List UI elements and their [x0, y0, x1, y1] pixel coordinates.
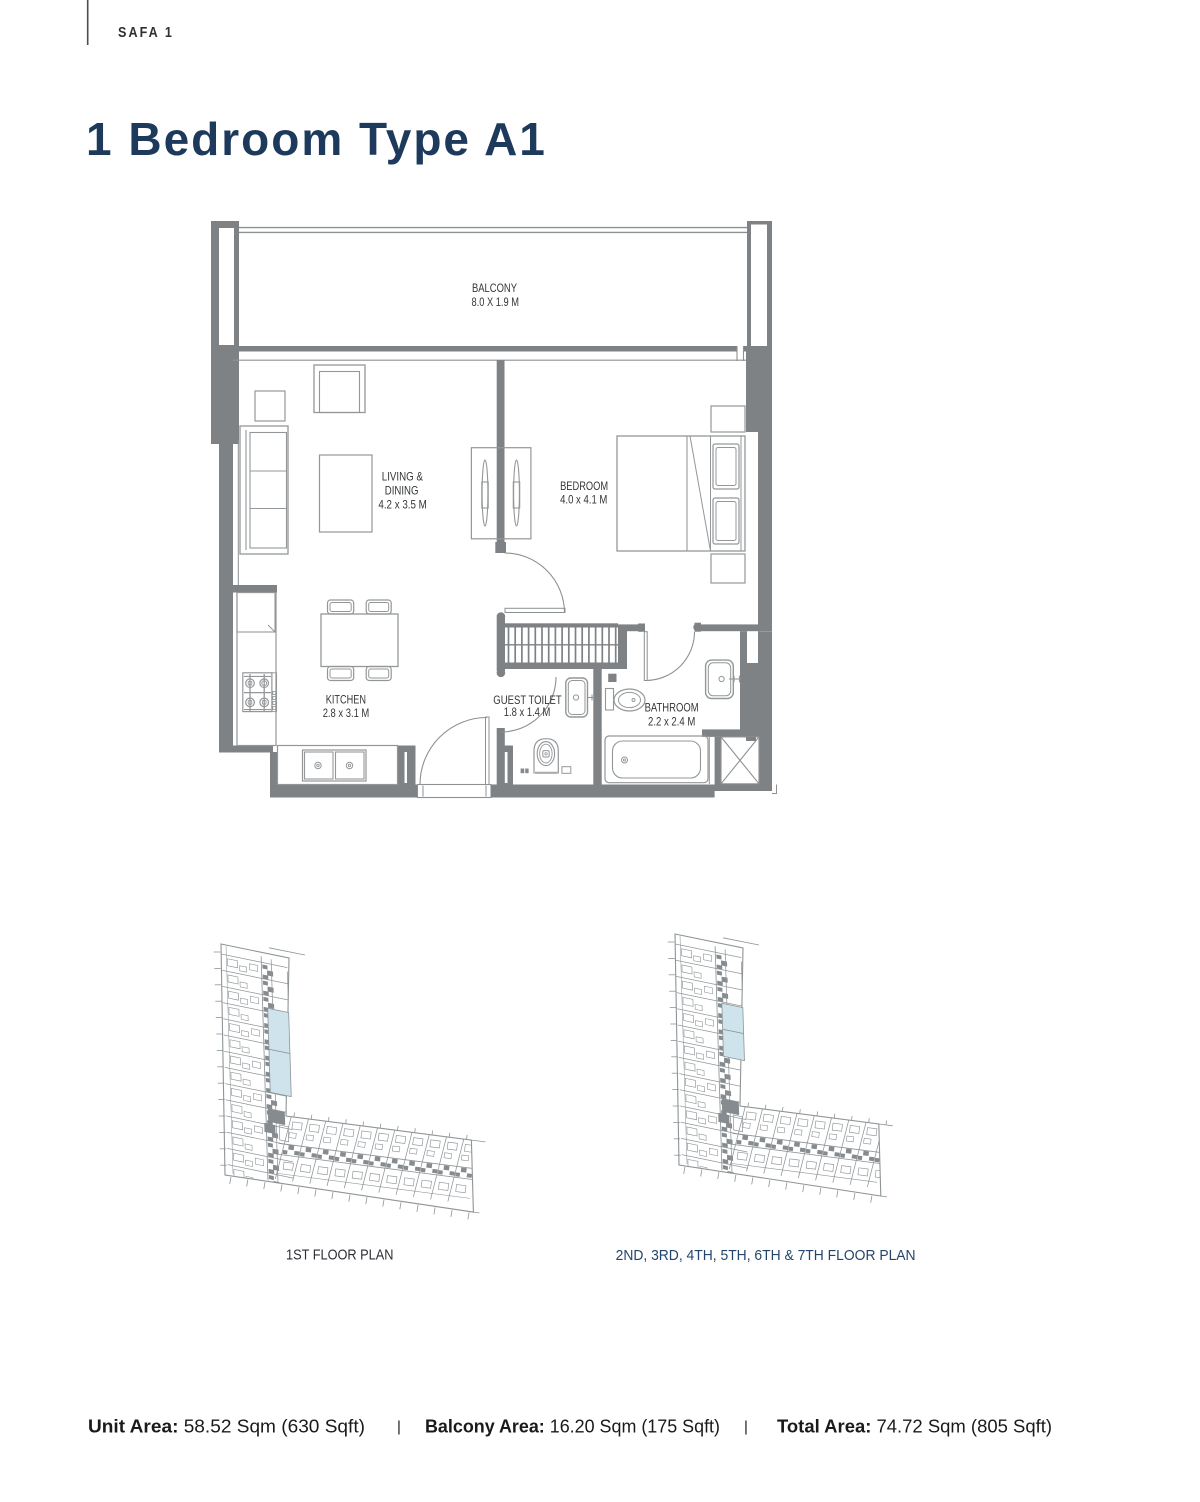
svg-text:|: |: [397, 1419, 401, 1436]
svg-text:1ST FLOOR PLAN: 1ST FLOOR PLAN: [286, 1247, 394, 1264]
svg-text:Unit Area: 58.52 Sqm (630 Sqf: Unit Area: 58.52 Sqm (630 Sqft): [88, 1417, 365, 1437]
svg-text:Balcony Area: 16.20 Sqm (175 S: Balcony Area: 16.20 Sqm (175 Sqft): [425, 1417, 720, 1437]
svg-text:BEDROOM: BEDROOM: [560, 479, 608, 493]
svg-text:LIVING &: LIVING &: [382, 470, 424, 484]
svg-text:1 Bedroom Type A1: 1 Bedroom Type A1: [86, 113, 547, 165]
svg-text:SAFA 1: SAFA 1: [118, 25, 174, 41]
svg-text:1.8 x 1.4 M: 1.8 x 1.4 M: [504, 705, 551, 719]
svg-text:KITCHEN: KITCHEN: [326, 692, 366, 706]
svg-text:8.0 X 1.9 M: 8.0 X 1.9 M: [472, 295, 520, 309]
svg-text:4.0 x 4.1 M: 4.0 x 4.1 M: [560, 492, 607, 506]
svg-text:2.2 x 2.4 M: 2.2 x 2.4 M: [648, 715, 695, 729]
svg-text:Total Area: 74.72 Sqm (805 Sqf: Total Area: 74.72 Sqm (805 Sqft): [777, 1417, 1052, 1437]
svg-text:2ND, 3RD, 4TH, 5TH, 6TH & 7TH: 2ND, 3RD, 4TH, 5TH, 6TH & 7TH FLOOR PLAN: [616, 1247, 916, 1264]
svg-text:4.2 x 3.5 M: 4.2 x 3.5 M: [378, 497, 426, 511]
svg-text:DINING: DINING: [385, 484, 419, 498]
svg-text:|: |: [744, 1419, 748, 1436]
svg-text:BALCONY: BALCONY: [472, 281, 517, 295]
svg-text:BATHROOM: BATHROOM: [645, 701, 699, 715]
svg-text:2.8 x 3.1 M: 2.8 x 3.1 M: [323, 706, 370, 720]
